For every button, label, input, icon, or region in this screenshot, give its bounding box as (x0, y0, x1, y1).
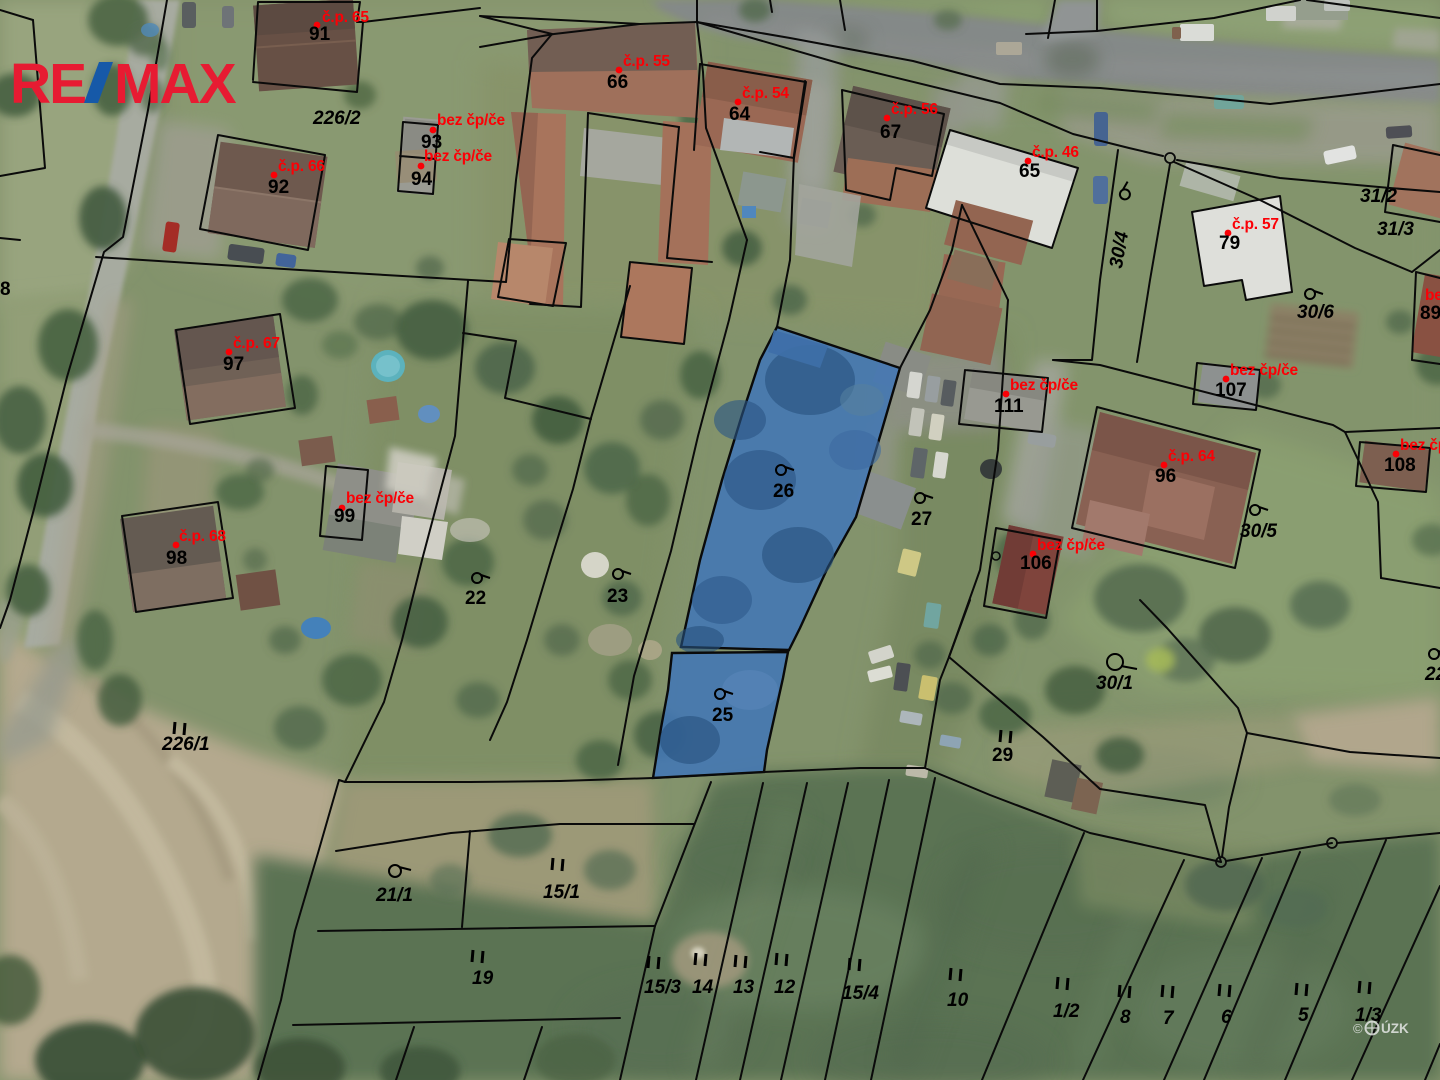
svg-text:1/2: 1/2 (1053, 1001, 1080, 1022)
svg-text:č.p. 56: č.p. 56 (891, 101, 938, 118)
svg-text:29: 29 (992, 745, 1013, 766)
svg-text:bez čp/če: bez čp/če (1010, 377, 1079, 394)
svg-text:99: 99 (334, 506, 355, 527)
svg-text:31/2: 31/2 (1360, 186, 1397, 207)
svg-text:97: 97 (223, 354, 244, 375)
svg-text:98: 98 (166, 548, 187, 569)
svg-text:č.p. 54: č.p. 54 (742, 85, 789, 102)
svg-text:bez čp/če: bez čp/če (437, 112, 506, 129)
svg-text:10: 10 (947, 990, 969, 1011)
svg-text:č.p. 57: č.p. 57 (1232, 216, 1279, 233)
svg-text:bez čp/če: bez čp/če (346, 490, 415, 507)
svg-text:226/1: 226/1 (161, 734, 210, 755)
svg-text:89: 89 (1420, 303, 1440, 324)
svg-text:6: 6 (1221, 1007, 1232, 1028)
svg-text:č.p. 64: č.p. 64 (1168, 448, 1215, 465)
svg-text:94: 94 (411, 169, 433, 190)
svg-text:8: 8 (1120, 1007, 1131, 1028)
svg-text:ÚZK: ÚZK (1381, 1021, 1409, 1036)
svg-text:22: 22 (465, 588, 486, 609)
svg-text:92: 92 (268, 177, 289, 198)
svg-text:12: 12 (774, 977, 796, 998)
svg-text:111: 111 (994, 396, 1024, 417)
svg-text:©: © (1353, 1021, 1363, 1036)
svg-text:7: 7 (1163, 1008, 1175, 1029)
svg-text:8: 8 (0, 279, 11, 300)
svg-text:96: 96 (1155, 466, 1176, 487)
svg-text:108: 108 (1384, 455, 1416, 476)
svg-text:15/4: 15/4 (842, 983, 879, 1004)
svg-text:22: 22 (1424, 664, 1440, 685)
svg-text:93: 93 (421, 132, 442, 153)
svg-text:č.p. 46: č.p. 46 (1032, 144, 1079, 161)
svg-text:30/6: 30/6 (1297, 302, 1334, 323)
svg-text:65: 65 (1019, 161, 1041, 182)
svg-text:27: 27 (911, 509, 932, 530)
svg-text:106: 106 (1020, 553, 1052, 574)
svg-text:15/3: 15/3 (644, 977, 681, 998)
svg-text:5: 5 (1298, 1005, 1309, 1026)
svg-text:25: 25 (712, 705, 734, 726)
svg-text:bez čp/če: bez čp/če (1400, 437, 1440, 454)
svg-text:RE: RE (10, 52, 85, 116)
svg-text:č.p. 67: č.p. 67 (233, 335, 280, 352)
svg-text:79: 79 (1219, 233, 1240, 254)
svg-text:30/5: 30/5 (1240, 521, 1277, 542)
svg-text:66: 66 (607, 72, 628, 93)
svg-text:31/3: 31/3 (1377, 219, 1414, 240)
svg-text:č.p. 55: č.p. 55 (623, 53, 670, 70)
svg-text:14: 14 (692, 977, 714, 998)
svg-text:64: 64 (729, 104, 751, 125)
svg-text:bez čp/če: bez čp/če (1037, 537, 1106, 554)
svg-text:bez č: bez č (1425, 287, 1440, 304)
svg-text:19: 19 (472, 968, 494, 989)
svg-text:91: 91 (309, 24, 331, 45)
svg-text:30/1: 30/1 (1096, 673, 1133, 694)
svg-text:107: 107 (1215, 380, 1247, 401)
svg-text:č.p. 68: č.p. 68 (179, 528, 226, 545)
svg-text:26: 26 (773, 481, 794, 502)
svg-text:67: 67 (880, 122, 901, 143)
svg-text:bez čp/če: bez čp/če (1230, 362, 1299, 379)
svg-text:13: 13 (733, 977, 755, 998)
svg-text:15/1: 15/1 (543, 882, 580, 903)
svg-text:č.p. 66: č.p. 66 (278, 158, 325, 175)
svg-text:23: 23 (607, 586, 628, 607)
svg-text:MAX: MAX (114, 52, 237, 116)
svg-text:21/1: 21/1 (375, 885, 413, 906)
svg-text:226/2: 226/2 (312, 108, 361, 129)
